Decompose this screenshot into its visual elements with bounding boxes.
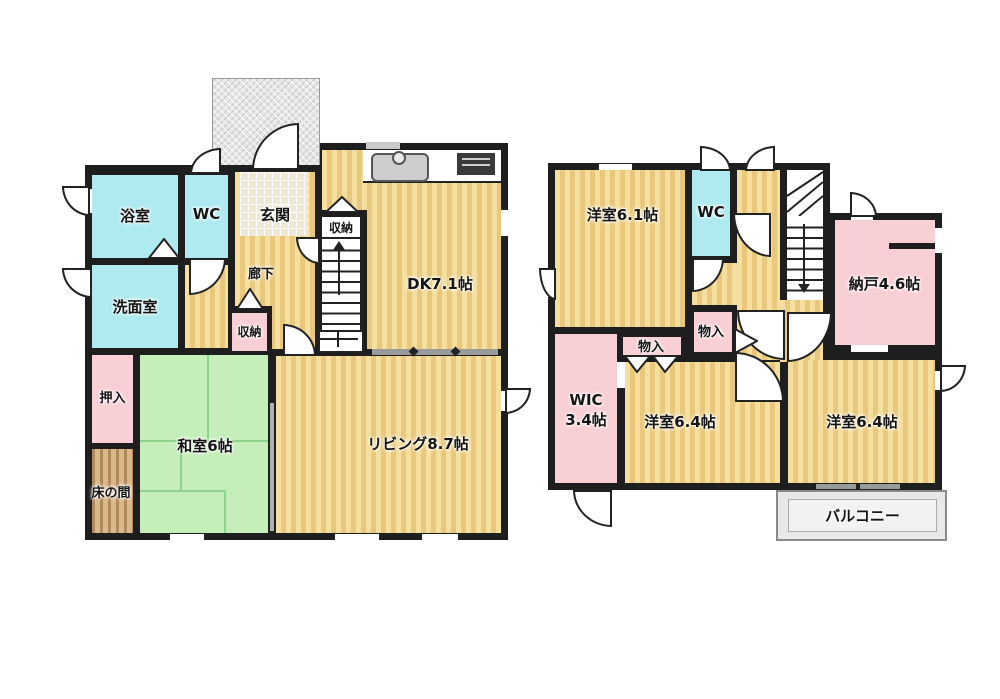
room-entrance-label: 玄関 <box>243 204 307 224</box>
stair-window-grid-bar <box>320 338 358 340</box>
door-arc-washroom-west <box>62 268 92 298</box>
storage-left-door-notch <box>624 355 651 373</box>
room-tokonoma-label: 床の間 <box>80 482 142 500</box>
room-bedroom2-label: 洋室6.4帖 <box>605 410 755 432</box>
stairs-down-arrow <box>803 224 805 284</box>
room-wc-2f-label: WC <box>692 202 730 222</box>
room-bedroom1 <box>555 170 685 327</box>
door-arc-above-wc <box>190 148 221 174</box>
balcony-sliding-door <box>816 484 856 489</box>
tatami-line <box>224 492 226 533</box>
room-nando-label: 納戸4.6帖 <box>832 272 937 294</box>
sliding-door-washitsu-living <box>270 403 274 531</box>
stair-window-grid <box>318 330 364 353</box>
room-bath-label: 浴室 <box>92 205 178 225</box>
stair-storage-label: 収納 <box>322 219 360 235</box>
door-arc-bedroom3-east <box>940 365 966 392</box>
window-living-south-2 <box>420 534 460 540</box>
window-living-south-1 <box>333 534 381 540</box>
stair-storage-door-notch <box>325 196 359 213</box>
stairs-up-arrowhead <box>333 241 345 250</box>
room-closet-1f-label: 収納 <box>232 323 267 339</box>
door-arc-above-wc2 <box>700 146 731 171</box>
room-hallway-label: 廊下 <box>238 263 284 281</box>
door-arc-bath-west <box>62 186 90 216</box>
tatami-line <box>140 490 226 492</box>
room-bedroom3-label: 洋室6.4帖 <box>787 410 937 432</box>
wic-door-arc <box>573 490 612 527</box>
stove-mark <box>462 158 490 160</box>
room-storage-left-label: 物入 <box>626 336 676 354</box>
window-dk-east <box>501 208 508 238</box>
window-bedroom1-north <box>597 164 634 170</box>
nando-door-arc <box>850 192 877 217</box>
door-arc-bedroom1-west <box>539 268 556 300</box>
sliding-door-dk-living <box>372 349 498 355</box>
closet-door-notch <box>236 288 264 310</box>
storage-mid-door-notch <box>734 328 758 354</box>
nando-south-gap <box>851 345 888 352</box>
tatami-line <box>207 355 209 441</box>
balcony-sliding-door <box>860 484 900 489</box>
stove-mark <box>462 164 490 166</box>
room-bedroom1-label: 洋室6.1帖 <box>570 203 675 225</box>
nando-partition <box>889 243 935 249</box>
room-storage-mid-label: 物入 <box>688 321 734 339</box>
room-washitsu-label: 和室6帖 <box>150 434 260 456</box>
window-nando-east <box>935 226 942 255</box>
storage-left-door-notch <box>652 355 679 373</box>
room-living-label: リビング8.7帖 <box>348 432 488 454</box>
stairs-2f-winder <box>787 170 823 216</box>
bath-door-notch <box>148 238 180 259</box>
room-oshiire-label: 押入 <box>92 387 133 405</box>
room-wc-1f-label: WC <box>185 204 228 224</box>
living-east-door-arc <box>505 388 531 414</box>
stairs-up-arrow <box>338 249 340 295</box>
window-washitsu-south <box>168 534 206 540</box>
room-washroom-label: 洗面室 <box>92 296 178 316</box>
kitchen-faucet-icon <box>392 151 406 165</box>
storage-mid-wall <box>687 305 737 312</box>
stairs-down-arrowhead <box>798 284 810 293</box>
window-above-sink <box>366 142 400 149</box>
closet-wall <box>267 306 272 353</box>
balcony-label: バルコニー <box>825 505 900 526</box>
floor-plan-canvas: 浴室 WC 玄関 廊下 収納 DK7.1帖 洗面室 収納 押入 和室6帖 床の間… <box>0 0 1000 699</box>
door-arc-above-hall2 <box>745 146 775 171</box>
balcony: バルコニー <box>776 490 947 541</box>
room-dk-label: DK7.1帖 <box>390 272 490 294</box>
